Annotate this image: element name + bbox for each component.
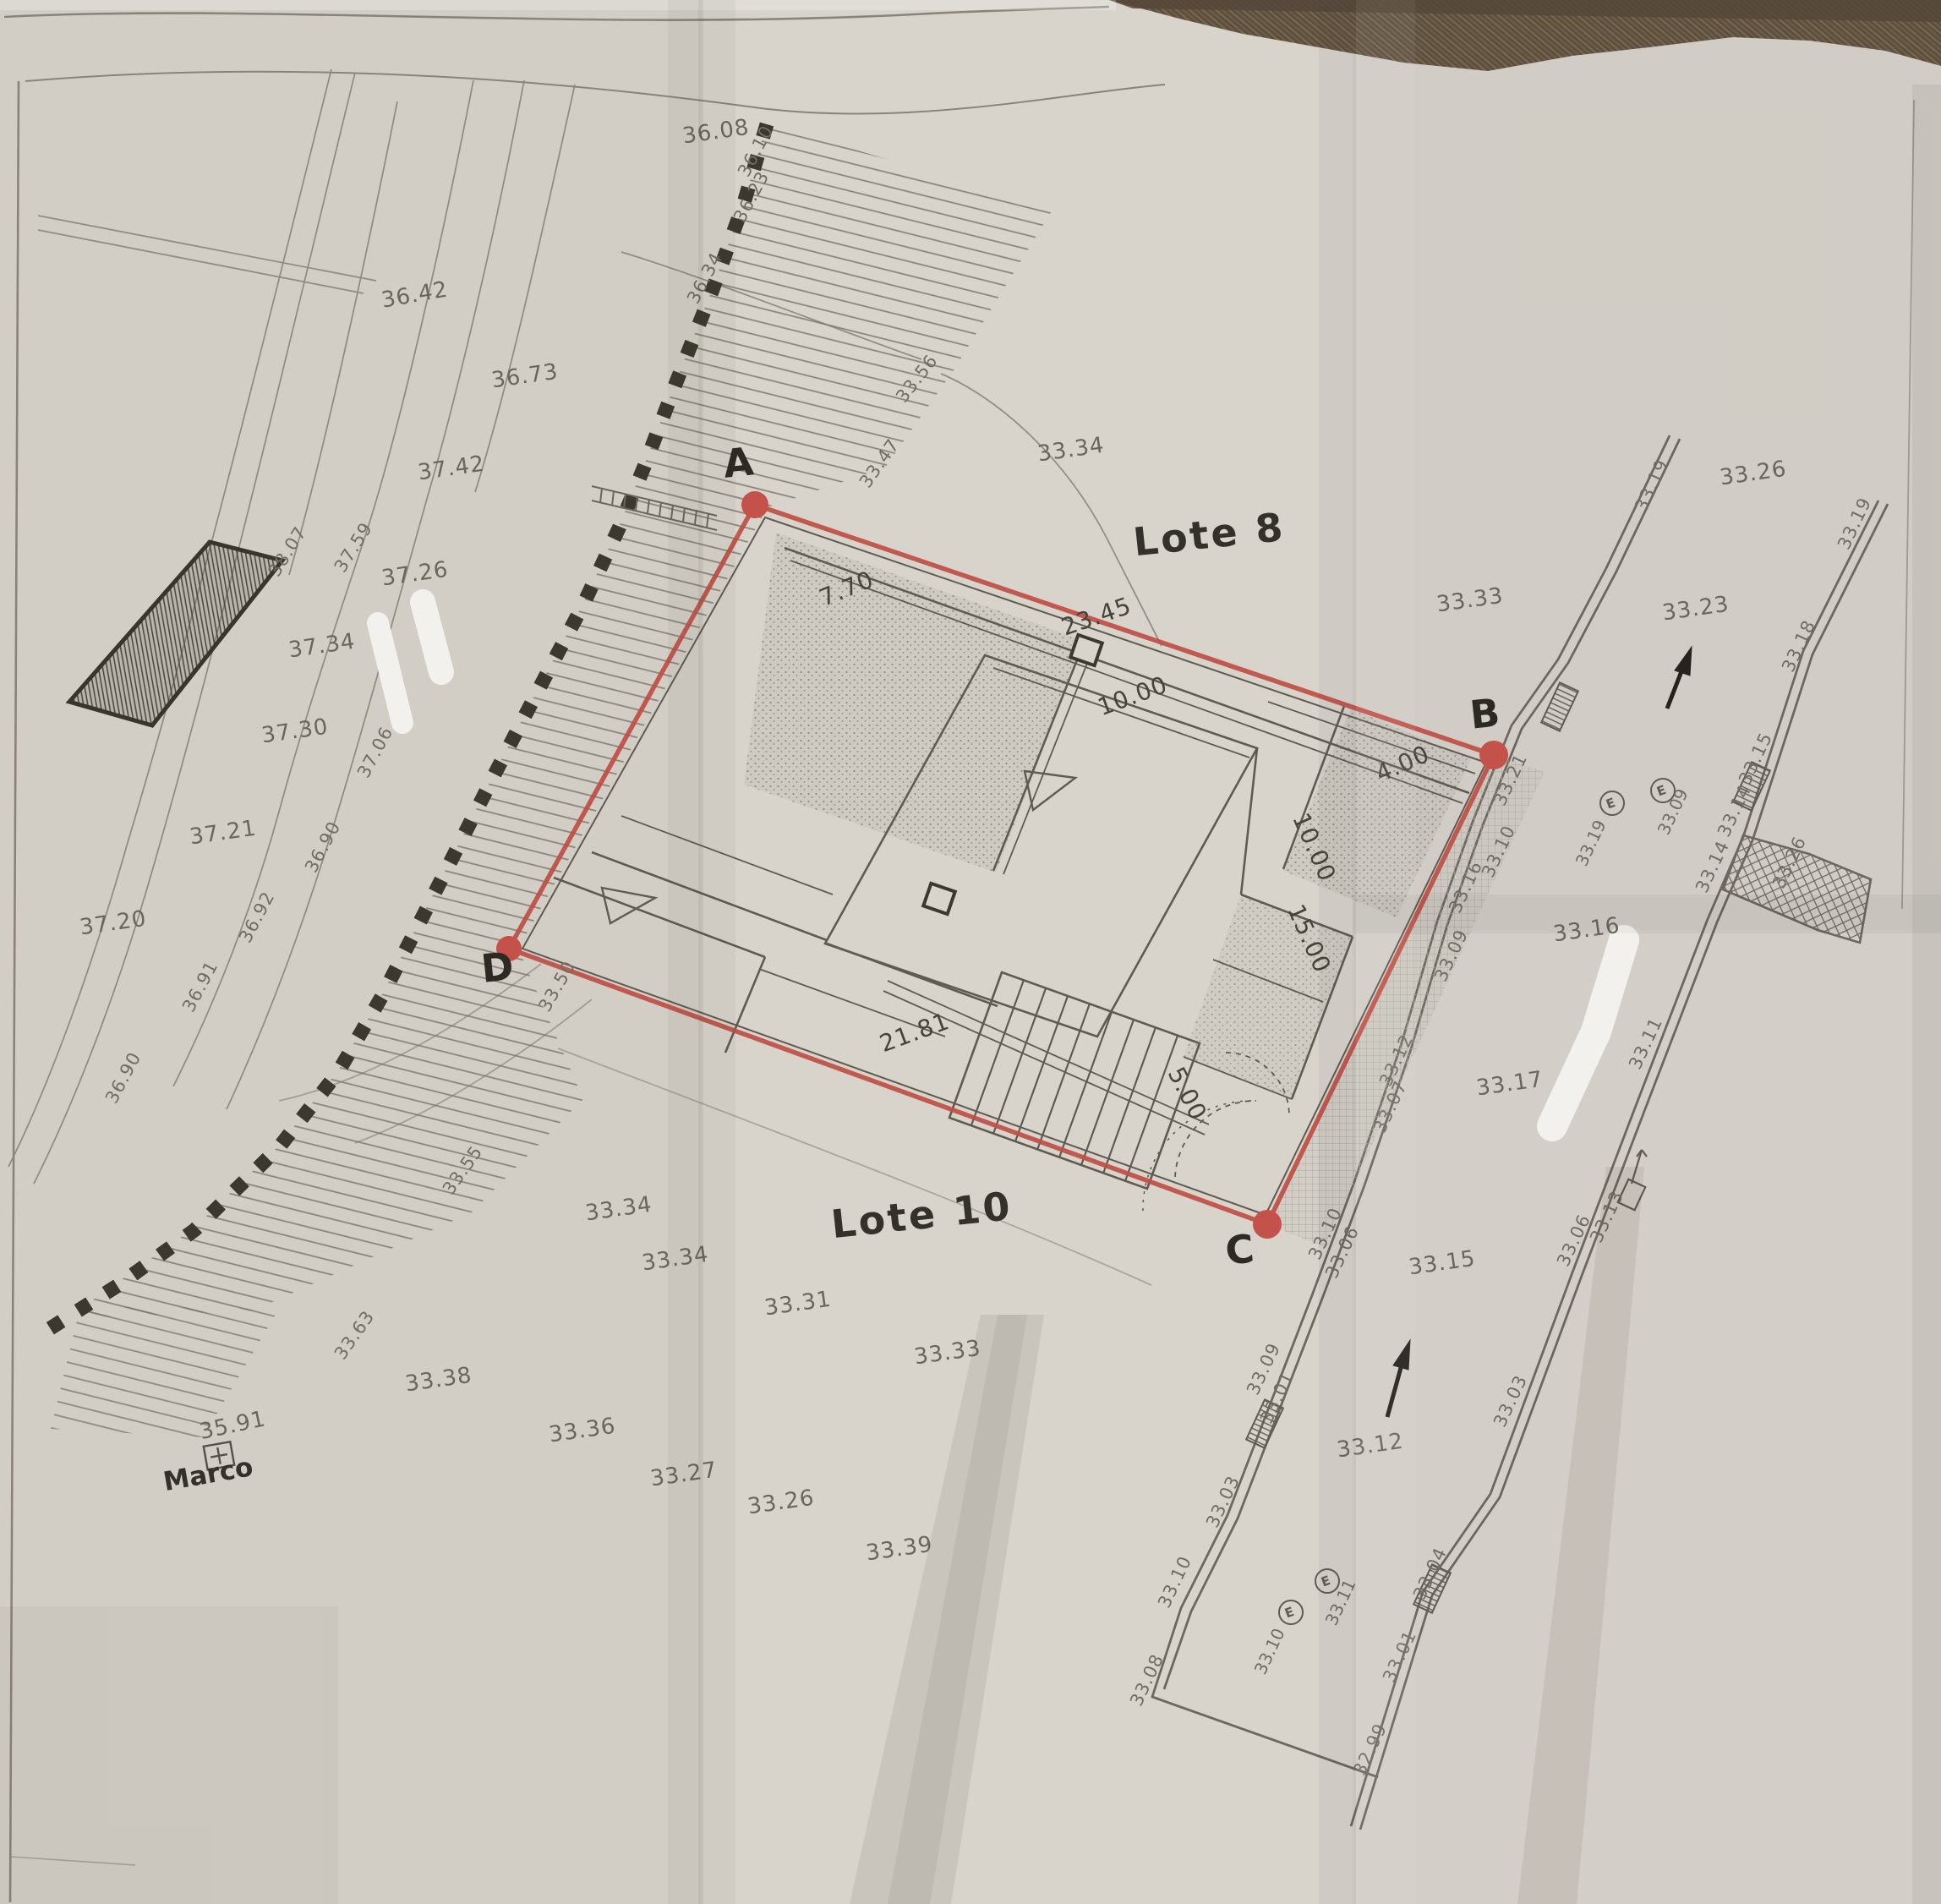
photo-of-site-plan: 36.4236.7337.4237.2637.3437.3037.2137.20… xyxy=(0,0,1941,1904)
vertex-label-c: C xyxy=(1223,1225,1256,1273)
vertex-dot-a xyxy=(741,491,768,518)
vertex-dot-c xyxy=(1253,1210,1282,1239)
vertex-dot-b xyxy=(1479,741,1508,769)
vertex-label-b: B xyxy=(1468,689,1502,737)
plan-canvas: 36.4236.7337.4237.2637.3437.3037.2137.20… xyxy=(0,0,1941,1904)
paper-top-edge-highlight xyxy=(0,0,1116,10)
vertex-label-d: D xyxy=(479,943,517,992)
